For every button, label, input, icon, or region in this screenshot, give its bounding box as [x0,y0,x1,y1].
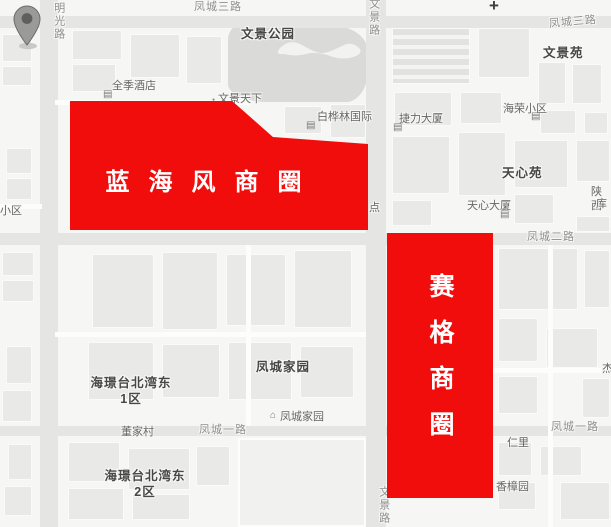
building [294,250,352,328]
building [460,92,502,124]
business-circle-saige[interactable]: 赛格商圈 [387,233,493,498]
building [538,62,566,104]
road-fengcheng-3 [0,16,611,28]
street-minor [548,245,553,527]
label-wenjingyuan: 文景苑 [543,46,584,62]
building [2,252,34,276]
label-xiangzhangyuan: 香樟园 [496,481,529,495]
building [72,30,122,60]
location-pin-icon[interactable] [12,5,42,51]
road-fengcheng-1 [0,426,611,436]
map-canvas[interactable]: 明光路凤城三路文景路凤城三路文景公园文景苑全季酒店文景天下白桦林国际捷力大厦海荣… [0,0,611,527]
building [560,482,610,520]
business-circle-saige-label: 赛格商圈 [422,233,458,457]
label-dongjiacun: 董家村 [121,426,154,440]
label-fengcheng-jiayuan-bold: 凤城家园 [256,360,310,376]
road-wenjing-lu [366,0,386,527]
building [576,140,610,182]
label-road-fengcheng-3-right: 凤城三路 [548,14,597,32]
building [6,148,32,174]
label-road-fengcheng-3-left: 凤城三路 [194,1,242,15]
building [392,200,432,226]
building [2,390,32,422]
building [514,194,554,224]
building [584,112,608,134]
street-minor [55,332,366,337]
building [130,34,180,78]
label-fengcheng-jiayuan-poi: 凤城家园 [280,411,324,425]
business-circle-lanhaifeng-label: 蓝海风商圈 [106,162,321,197]
building [540,446,582,476]
building [572,64,602,104]
building-icon: ▤ [393,123,402,133]
building-icon: ▤ [531,112,540,122]
building-icon: ▤ [103,90,112,100]
building [2,280,34,302]
building [2,66,32,86]
building [72,64,116,92]
label-edge-partial: 杰 [602,363,611,377]
building [92,254,154,328]
building [186,36,222,84]
building [582,378,610,418]
building [6,178,32,200]
label-xiaoqu-partial: 小区 [0,205,22,219]
building-icon: ▤ [306,121,315,131]
building [6,346,32,384]
building-icon: ▤ [500,210,509,220]
building [498,248,578,310]
empty-lot [238,438,366,527]
building [4,486,32,516]
building [196,446,230,486]
building [226,254,286,326]
house-icon: ⌂ [270,411,276,421]
label-road-fengcheng-1-left: 凤城一路 [199,424,247,438]
label-jieli-dasha: 捷力大厦 [399,113,443,127]
label-park-wenjing-gongyuan: 文景公园 [241,27,295,43]
label-ku-partial: 库 [596,198,607,212]
building [576,216,610,232]
label-road-fengcheng-2: 凤城二路 [527,231,575,245]
building [392,136,450,194]
street-minor [493,368,611,373]
building [162,252,218,330]
road-mingguang-lu [40,0,58,527]
label-dian-partial: 点 [369,202,380,216]
building [478,28,530,78]
label-road-fengcheng-1-right: 凤城一路 [551,421,599,435]
label-road-wenjing-top: 文景路 [366,0,380,37]
building [498,376,538,414]
label-haijing-dong-1: 海璟台北湾东 1区 [90,376,171,407]
road-fengcheng-2 [0,233,611,245]
building [8,444,32,480]
building [498,318,538,362]
street-minor [246,245,251,426]
label-renli: 仁里 [507,437,529,451]
building [458,132,506,196]
label-quanji-hotel: 全季酒店 [112,80,156,94]
building [584,250,610,308]
plus-marker-icon: + [489,0,499,16]
label-road-mingguang: 明光路 [51,2,65,41]
label-tianxinyuan: 天心苑 [502,166,543,182]
building [392,28,470,84]
label-baihualin-guoji: 白桦林国际 [317,111,372,125]
label-haijing-dong-2: 海璟台北湾东 2区 [104,469,185,500]
building [546,328,598,368]
